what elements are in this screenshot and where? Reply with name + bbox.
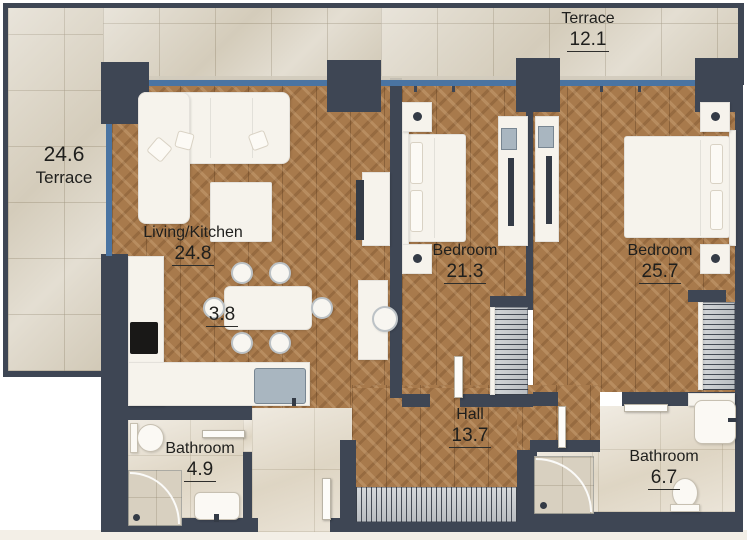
room-label-bedroom-1: Bedroom 21.3	[390, 242, 540, 284]
floor-terrace-left	[8, 8, 106, 371]
window-living-top	[149, 80, 327, 86]
room-label-bedroom-2: Bedroom 25.7	[585, 242, 735, 284]
wall-segment	[330, 518, 340, 532]
wall-pillar	[327, 60, 381, 112]
room-area: 24.6	[44, 143, 85, 168]
wall-segment	[535, 512, 743, 532]
tv-unit-drawer	[538, 126, 554, 148]
bed-headboard	[729, 130, 736, 246]
wall-segment	[390, 78, 402, 398]
tv-bedroom-1	[508, 158, 514, 226]
wall-segment	[3, 371, 110, 377]
door-bathroom-1	[202, 430, 245, 438]
hall-wardrobe-hangers	[356, 487, 517, 522]
window-tick	[414, 86, 417, 92]
bed-headboard	[402, 130, 409, 246]
wall-segment	[101, 420, 128, 532]
door-bedroom-2	[558, 406, 566, 448]
bed-pillow	[410, 190, 423, 232]
room-name: Terrace	[518, 10, 658, 29]
wall-segment	[3, 3, 8, 377]
sink	[694, 400, 736, 444]
window-tick	[600, 86, 603, 92]
room-area: 6.7	[648, 467, 680, 490]
tv-living	[356, 180, 364, 240]
wall-segment	[3, 3, 743, 8]
wall-segment	[688, 290, 726, 302]
room-label-bathroom-2: Bathroom 6.7	[604, 448, 724, 490]
room-name: Bathroom	[140, 440, 260, 459]
room-name: Terrace	[12, 168, 116, 188]
cooktop	[130, 322, 158, 354]
wall-segment	[340, 522, 537, 532]
duvet-seam	[434, 138, 435, 238]
window-bedroom-1	[381, 80, 516, 86]
room-area: 3.8	[206, 304, 238, 327]
room-label-hall: Hall 13.7	[410, 406, 530, 448]
dining-chair	[231, 332, 253, 354]
wall-segment	[128, 406, 252, 420]
room-area: 24.8	[172, 243, 215, 266]
floor-plan: 24.6 Terrace Terrace 12.1 Living/Kitchen…	[0, 0, 747, 540]
room-area: 4.9	[184, 459, 216, 482]
room-label-terrace-left: 24.6 Terrace	[12, 143, 116, 188]
kitchen-sink	[254, 368, 306, 404]
wall-segment	[490, 296, 532, 307]
tv-stand-living	[362, 172, 390, 246]
bed-pillow	[710, 190, 723, 230]
sofa-seam	[210, 98, 211, 158]
nightstand-lamp	[711, 112, 720, 121]
nightstand-lamp	[413, 112, 422, 121]
desk-chair	[372, 306, 398, 332]
door-entrance	[322, 478, 331, 520]
wall-segment	[101, 254, 128, 420]
room-area: 25.7	[639, 261, 682, 284]
wall-segment	[735, 85, 743, 512]
door-bathroom-2	[624, 404, 668, 412]
duvet-seam	[700, 140, 701, 236]
room-label-living-kitchen: Living/Kitchen 24.8	[118, 224, 268, 266]
wardrobe-drawer	[501, 128, 517, 150]
dining-chair	[311, 297, 333, 319]
closet-edge	[698, 302, 703, 390]
room-label-bathroom-1: Bathroom 4.9	[140, 440, 260, 482]
room-label-kitchen-zone: 3.8	[192, 304, 252, 327]
room-area: 12.1	[567, 29, 610, 52]
shower-head	[133, 514, 140, 521]
shower-head	[540, 502, 547, 509]
sink-faucet	[728, 418, 736, 422]
room-name: Hall	[410, 406, 530, 425]
window-tick	[452, 86, 455, 92]
closet-hangers-bedroom-1	[490, 307, 528, 395]
wall-segment	[533, 392, 558, 406]
dining-chair	[269, 332, 291, 354]
room-name: Bedroom	[390, 242, 540, 261]
room-name: Bathroom	[604, 448, 724, 467]
wall-pillar	[516, 58, 560, 112]
floor-entry-corridor	[252, 400, 352, 532]
closet-hangers-bedroom-2	[698, 302, 735, 390]
sink-faucet	[214, 514, 219, 522]
room-label-terrace-top: Terrace 12.1	[518, 10, 658, 52]
bed-pillow	[710, 144, 723, 184]
door-bedroom-1	[454, 356, 463, 398]
window-tick	[638, 86, 641, 92]
bed-pillow	[410, 142, 423, 184]
closet-edge	[490, 307, 495, 395]
room-area: 13.7	[449, 425, 492, 448]
room-name: Living/Kitchen	[118, 224, 268, 243]
dining-chair	[269, 262, 291, 284]
room-name: Bedroom	[585, 242, 735, 261]
tv-bedroom-2	[546, 156, 552, 224]
kitchen-faucet	[292, 398, 296, 406]
window-bedroom-2	[560, 80, 695, 86]
toilet-tank	[670, 504, 700, 512]
wall-segment	[340, 440, 356, 532]
room-area: 21.3	[444, 261, 487, 284]
